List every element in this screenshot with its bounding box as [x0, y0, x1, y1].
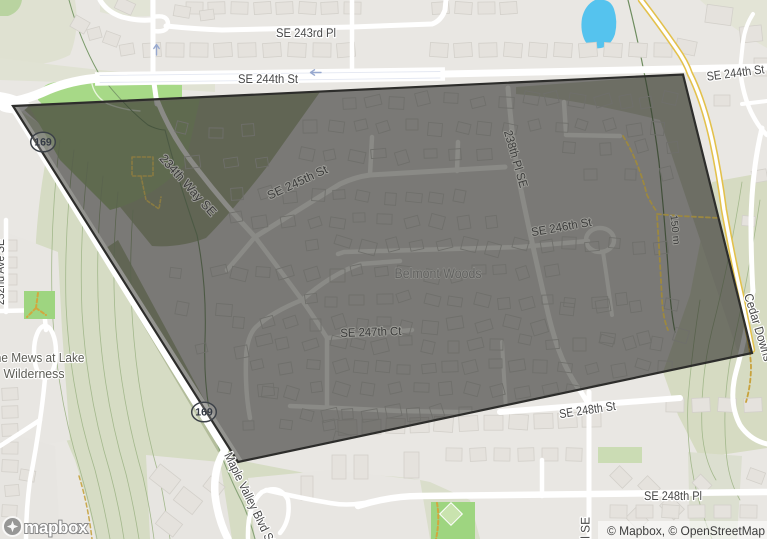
svg-text:The Mews at Lake: The Mews at Lake — [0, 350, 85, 365]
svg-text:SE 248th Pl: SE 248th Pl — [644, 489, 702, 503]
svg-text:Belmont Woods: Belmont Woods — [395, 265, 482, 281]
svg-text:SE 247th Ct: SE 247th Ct — [340, 324, 402, 340]
svg-text:mapbox: mapbox — [24, 518, 88, 537]
svg-text:SE 243rd Pl: SE 243rd Pl — [276, 26, 336, 40]
svg-text:Wilderness: Wilderness — [4, 366, 65, 381]
svg-text:169: 169 — [34, 137, 52, 149]
svg-text:169: 169 — [195, 407, 213, 419]
svg-text:241st Pl SE: 241st Pl SE — [579, 517, 593, 539]
svg-text:232nd Ave SE: 232nd Ave SE — [0, 239, 7, 305]
svg-text:© Mapbox, © OpenStreetMap: © Mapbox, © OpenStreetMap — [607, 524, 765, 538]
svg-text:SE 244th St: SE 244th St — [238, 72, 298, 86]
